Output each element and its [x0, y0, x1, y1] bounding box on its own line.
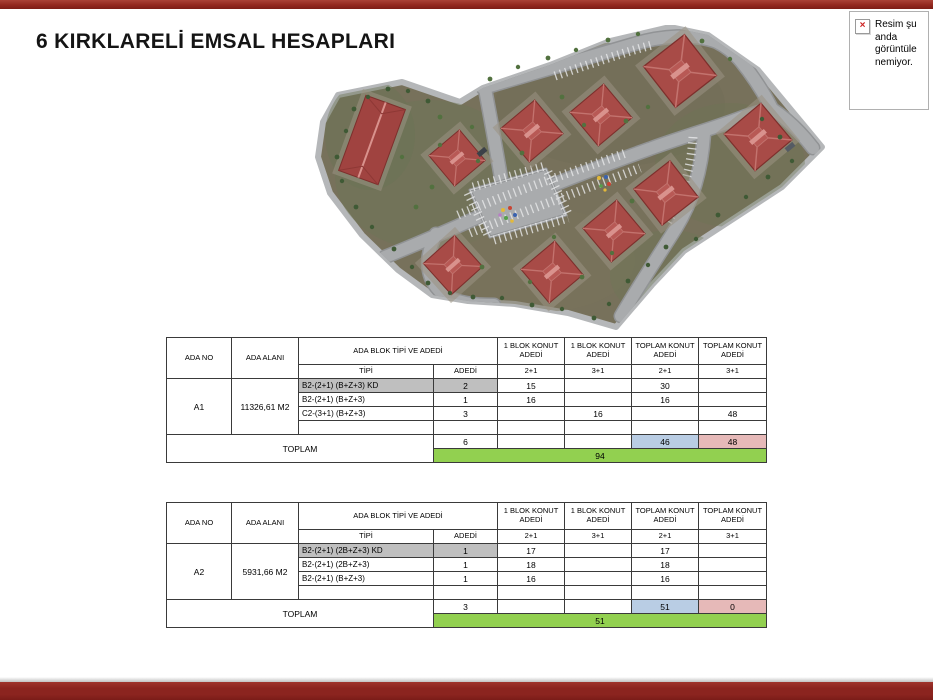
toplam-21-total-cell: 51 [632, 600, 699, 614]
blok-21-cell: 15 [498, 379, 565, 393]
col-header-toplam-konut-21: TOPLAM KONUT ADEDİ [632, 338, 699, 365]
adedi-cell: 2 [434, 379, 498, 393]
empty-cell [565, 421, 632, 435]
toplam-21-cell: 16 [632, 572, 699, 586]
bottom-accent-bar [0, 682, 933, 700]
col-header-toplam-konut-31: TOPLAM KONUT ADEDİ [699, 503, 767, 530]
tipi-cell: B2-(2+1) (2B+Z+3) [299, 558, 434, 572]
adedi-cell: 1 [434, 558, 498, 572]
toplam-adedi-cell: 3 [434, 600, 498, 614]
toplam-blok-31-cell [565, 435, 632, 449]
toplam-blok-31-cell [565, 600, 632, 614]
blok-21-cell: 16 [498, 393, 565, 407]
toplam-21-cell: 18 [632, 558, 699, 572]
empty-cell [434, 421, 498, 435]
col-header-blok-konut-31: 1 BLOK KONUT ADEDİ [565, 503, 632, 530]
slide: 6 KIRKLARELİ EMSAL HESAPLARI × Resim şu … [0, 0, 933, 700]
col-header-ada-alani: ADA ALANI [232, 503, 299, 544]
toplam-31-total-cell: 0 [699, 600, 767, 614]
blok-31-cell: 16 [565, 407, 632, 421]
toplam-31-cell: 48 [699, 407, 767, 421]
toplam-31-cell [699, 572, 767, 586]
blok-31-cell [565, 544, 632, 558]
empty-cell [632, 586, 699, 600]
ada-no-cell: A2 [167, 544, 232, 600]
empty-cell [434, 586, 498, 600]
adedi-cell: 1 [434, 544, 498, 558]
toplam-row: TOPLAM 3 51 0 [167, 600, 767, 614]
col-subheader-2-1: 2+1 [498, 365, 565, 379]
blok-31-cell [565, 558, 632, 572]
toplam-31-cell [699, 379, 767, 393]
ada-alani-cell: 11326,61 M2 [232, 379, 299, 435]
empty-cell [299, 586, 434, 600]
blok-31-cell [565, 572, 632, 586]
col-subheader-tipi: TİPİ [299, 530, 434, 544]
col-subheader-3-1: 3+1 [699, 530, 767, 544]
col-header-blok-konut-31: 1 BLOK KONUT ADEDİ [565, 338, 632, 365]
ada-alani-cell: 5931,66 M2 [232, 544, 299, 600]
tipi-cell: C2-(3+1) (B+Z+3) [299, 407, 434, 421]
ada-no-cell: A1 [167, 379, 232, 435]
broken-image-line: görüntüle [875, 44, 917, 57]
empty-cell [699, 421, 767, 435]
col-header-ada-no: ADA NO [167, 503, 232, 544]
genel-toplam-cell: 51 [434, 614, 767, 628]
table-header-row: ADA NO ADA ALANI ADA BLOK TİPİ VE ADEDİ … [167, 503, 767, 530]
broken-image-x-icon: × [855, 19, 870, 34]
toplam-21-total-cell: 46 [632, 435, 699, 449]
tipi-cell: B2-(2+1) (B+Z+3) [299, 393, 434, 407]
col-header-toplam-konut-21: TOPLAM KONUT ADEDİ [632, 503, 699, 530]
toplam-31-cell [699, 393, 767, 407]
toplam-21-cell: 16 [632, 393, 699, 407]
col-subheader-adedi: ADEDİ [434, 530, 498, 544]
table-row: A1 11326,61 M2 B2-(2+1) (B+Z+3) KD 2 15 … [167, 379, 767, 393]
tipi-cell: B2-(2+1) (B+Z+3) [299, 572, 434, 586]
empty-cell [299, 421, 434, 435]
empty-cell [498, 421, 565, 435]
empty-cell [565, 586, 632, 600]
broken-image-placeholder[interactable]: × Resim şu anda görüntüle nemiyor. [849, 11, 929, 110]
site-plan-image [310, 25, 830, 335]
emsal-table-a2: ADA NO ADA ALANI ADA BLOK TİPİ VE ADEDİ … [166, 502, 766, 628]
blok-21-cell: 18 [498, 558, 565, 572]
toplam-31-cell [699, 558, 767, 572]
col-subheader-3-1: 3+1 [699, 365, 767, 379]
col-subheader-2-1: 2+1 [632, 530, 699, 544]
toplam-label-cell: TOPLAM [167, 600, 434, 628]
col-subheader-2-1: 2+1 [632, 365, 699, 379]
empty-cell [699, 586, 767, 600]
col-subheader-3-1: 3+1 [565, 530, 632, 544]
table-header-row: ADA NO ADA ALANI ADA BLOK TİPİ VE ADEDİ … [167, 338, 767, 365]
col-header-blok-konut-21: 1 BLOK KONUT ADEDİ [498, 503, 565, 530]
adedi-cell: 1 [434, 572, 498, 586]
toplam-31-cell [699, 544, 767, 558]
adedi-cell: 1 [434, 393, 498, 407]
blok-31-cell [565, 393, 632, 407]
col-subheader-tipi: TİPİ [299, 365, 434, 379]
col-header-ada-no: ADA NO [167, 338, 232, 379]
empty-cell [498, 586, 565, 600]
broken-image-text: Resim şu anda görüntüle nemiyor. [875, 19, 917, 106]
toplam-label-cell: TOPLAM [167, 435, 434, 463]
toplam-21-cell: 17 [632, 544, 699, 558]
toplam-blok-21-cell [498, 600, 565, 614]
blok-21-cell: 16 [498, 572, 565, 586]
col-header-ada-alani: ADA ALANI [232, 338, 299, 379]
adedi-cell: 3 [434, 407, 498, 421]
genel-toplam-cell: 94 [434, 449, 767, 463]
col-header-toplam-konut-31: TOPLAM KONUT ADEDİ [699, 338, 767, 365]
broken-image-line: nemiyor. [875, 57, 917, 70]
emsal-table-a1: ADA NO ADA ALANI ADA BLOK TİPİ VE ADEDİ … [166, 337, 766, 463]
toplam-31-total-cell: 48 [699, 435, 767, 449]
col-subheader-3-1: 3+1 [565, 365, 632, 379]
blok-31-cell [565, 379, 632, 393]
col-subheader-adedi: ADEDİ [434, 365, 498, 379]
broken-image-line: anda [875, 32, 917, 45]
toplam-row: TOPLAM 6 46 48 [167, 435, 767, 449]
toplam-blok-21-cell [498, 435, 565, 449]
tipi-cell: B2-(2+1) (B+Z+3) KD [299, 379, 434, 393]
col-header-ada-blok: ADA BLOK TİPİ VE ADEDİ [299, 338, 498, 365]
toplam-21-cell [632, 407, 699, 421]
tipi-cell: B2-(2+1) (2B+Z+3) KD [299, 544, 434, 558]
broken-image-line: Resim şu [875, 19, 917, 32]
col-header-ada-blok: ADA BLOK TİPİ VE ADEDİ [299, 503, 498, 530]
col-header-blok-konut-21: 1 BLOK KONUT ADEDİ [498, 338, 565, 365]
empty-cell [632, 421, 699, 435]
toplam-adedi-cell: 6 [434, 435, 498, 449]
blok-21-cell: 17 [498, 544, 565, 558]
blok-21-cell [498, 407, 565, 421]
toplam-21-cell: 30 [632, 379, 699, 393]
table-row: A2 5931,66 M2 B2-(2+1) (2B+Z+3) KD 1 17 … [167, 544, 767, 558]
col-subheader-2-1: 2+1 [498, 530, 565, 544]
top-accent-bar [0, 0, 933, 9]
